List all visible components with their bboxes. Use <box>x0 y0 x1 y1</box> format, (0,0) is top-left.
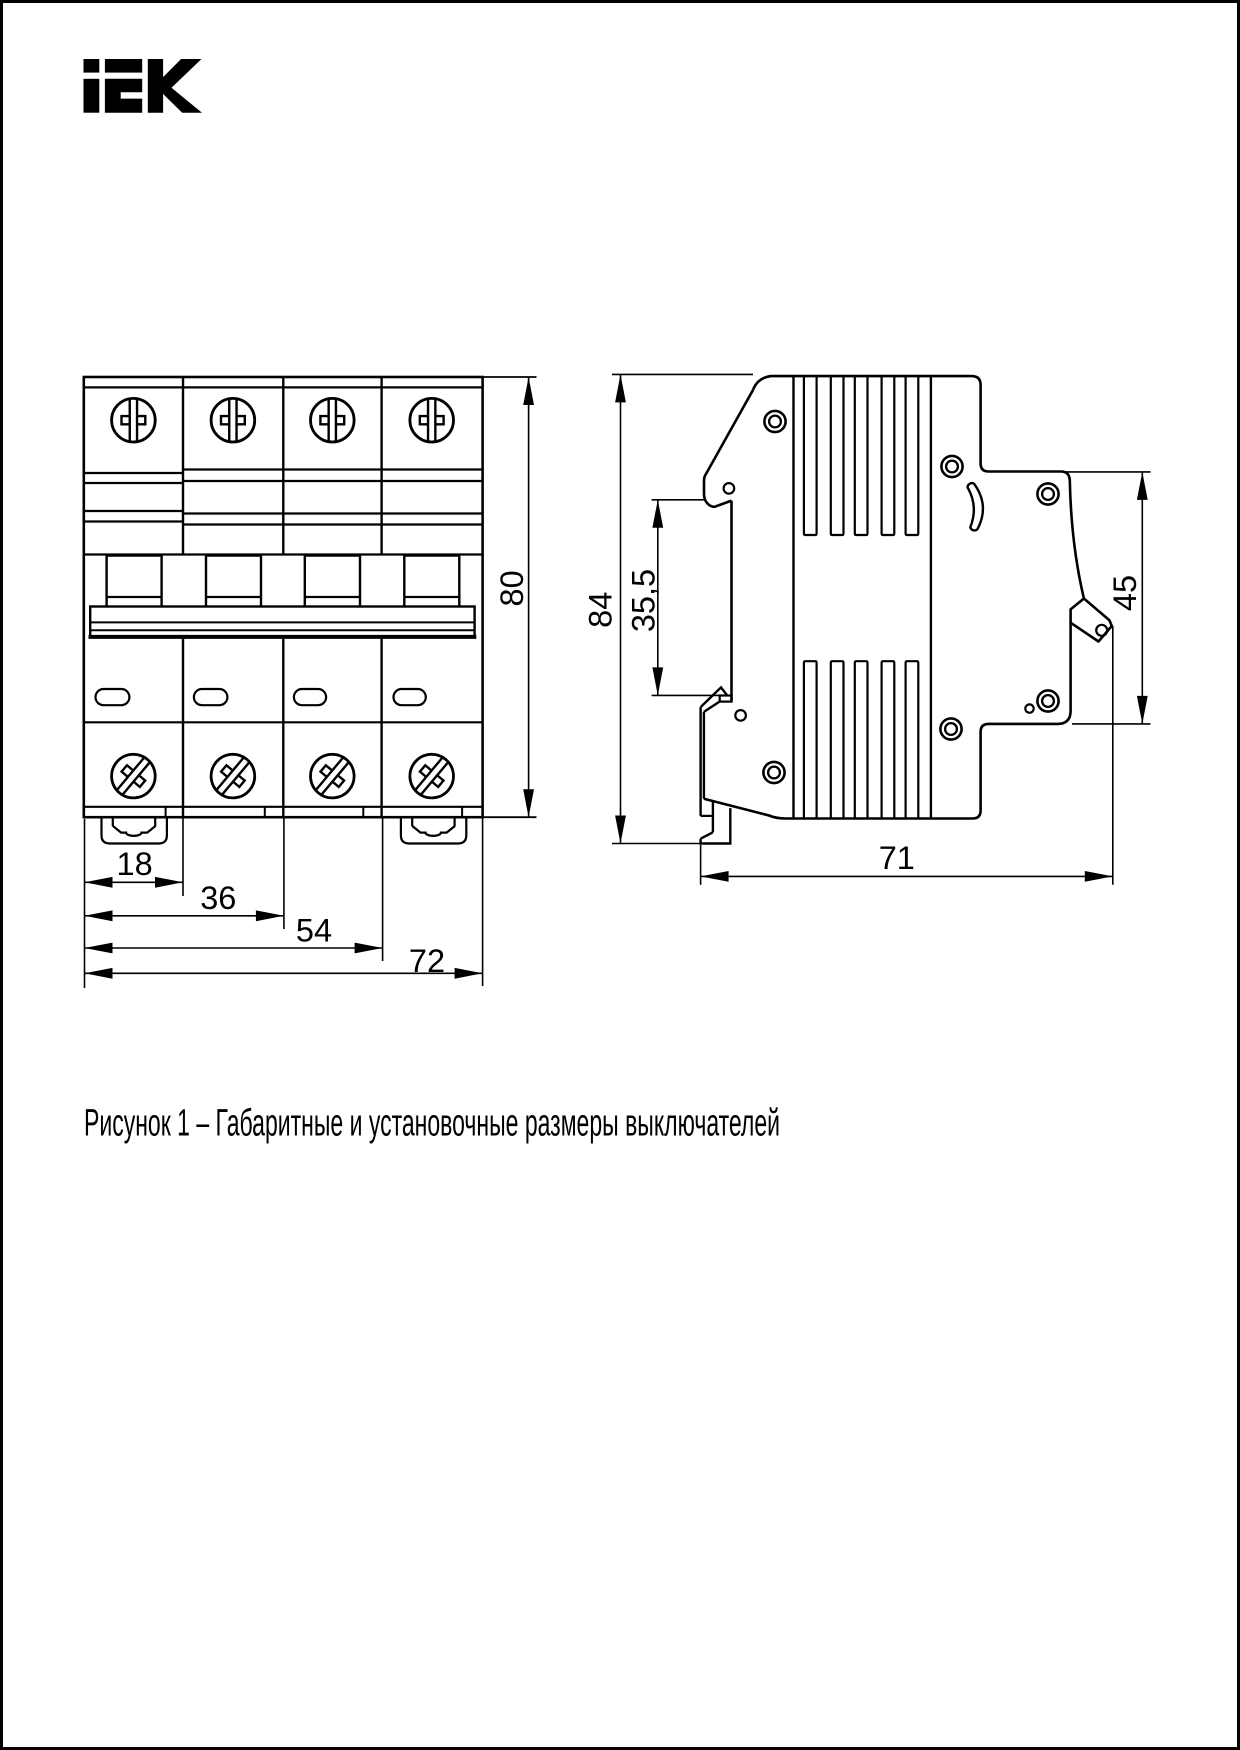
svg-text:72: 72 <box>409 943 445 979</box>
svg-text:80: 80 <box>494 570 530 606</box>
svg-text:18: 18 <box>117 846 153 882</box>
svg-text:54: 54 <box>296 913 332 949</box>
svg-text:36: 36 <box>200 880 236 916</box>
svg-text:Рисунок 1 – Габаритные и устан: Рисунок 1 – Габаритные и установочные ра… <box>84 1102 780 1144</box>
svg-text:84: 84 <box>583 592 619 628</box>
svg-text:35,5: 35,5 <box>626 569 662 632</box>
svg-text:71: 71 <box>879 840 915 876</box>
svg-text:45: 45 <box>1107 575 1143 611</box>
